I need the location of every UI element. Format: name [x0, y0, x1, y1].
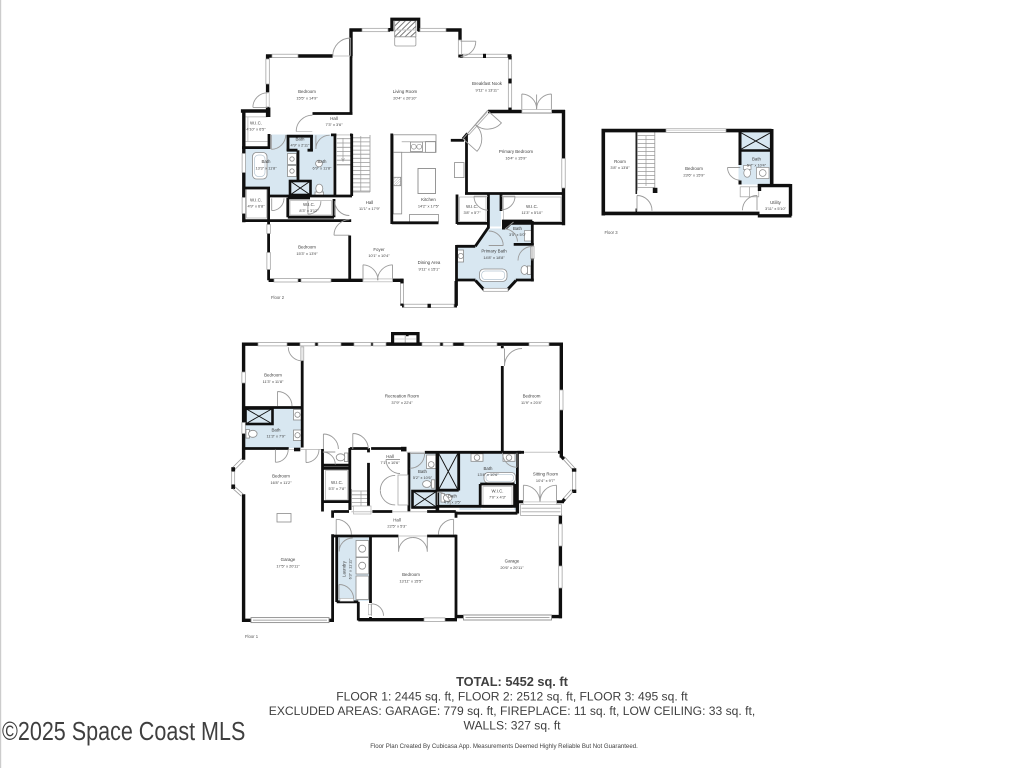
- svg-text:WALLS: 327 sq. ft: WALLS: 327 sq. ft: [463, 719, 561, 733]
- svg-text:Kitchen: Kitchen: [421, 197, 436, 202]
- svg-text:Foyer: Foyer: [373, 247, 385, 252]
- svg-text:Bath: Bath: [317, 159, 327, 164]
- svg-text:4'9" x 6'8": 4'9" x 6'8": [247, 204, 265, 209]
- svg-text:3'8" x 13'8": 3'8" x 13'8": [610, 165, 630, 170]
- svg-text:W.I.C.: W.I.C.: [492, 489, 504, 494]
- svg-text:11'3" x 11'8": 11'3" x 11'8": [263, 379, 284, 384]
- svg-text:15'5" x 14'9": 15'5" x 14'9": [296, 96, 318, 101]
- svg-text:17'5" x 20'11": 17'5" x 20'11": [276, 564, 300, 569]
- svg-text:W.I.C.: W.I.C.: [466, 204, 478, 209]
- svg-text:Floor 3: Floor 3: [605, 230, 619, 235]
- svg-text:Hall: Hall: [393, 518, 401, 523]
- svg-text:11'9" x 20'4": 11'9" x 20'4": [521, 400, 543, 405]
- svg-text:13'3" x 11'8": 13'3" x 11'8": [255, 166, 277, 171]
- svg-text:23'6" x 15'9": 23'6" x 15'9": [683, 173, 705, 178]
- svg-text:Floor 1: Floor 1: [245, 634, 259, 639]
- svg-text:14'2" x 17'5": 14'2" x 17'5": [418, 204, 440, 209]
- svg-text:14'8" x 18'8": 14'8" x 18'8": [483, 255, 505, 260]
- svg-text:Bedroom: Bedroom: [272, 474, 290, 479]
- svg-text:11'3" x 7'9": 11'3" x 7'9": [267, 434, 287, 439]
- svg-text:Bath: Bath: [261, 159, 271, 164]
- svg-text:Bedroom: Bedroom: [298, 89, 316, 94]
- svg-text:Breakfast Nook: Breakfast Nook: [472, 81, 503, 86]
- svg-text:Bath: Bath: [295, 137, 305, 142]
- svg-text:W.I.C.: W.I.C.: [303, 202, 315, 207]
- svg-text:W.I.C.: W.I.C.: [526, 204, 538, 209]
- svg-text:3'5" x 5'0": 3'5" x 5'0": [509, 232, 527, 237]
- svg-text:16'8" x 11'2": 16'8" x 11'2": [270, 480, 292, 485]
- svg-text:9'11" x 15'1": 9'11" x 15'1": [418, 267, 440, 272]
- svg-text:Bath: Bath: [513, 226, 523, 231]
- svg-text:11'1" x 17'9": 11'1" x 17'9": [359, 206, 381, 211]
- svg-text:5'2" x 10'6": 5'2" x 10'6": [413, 475, 433, 480]
- svg-text:4'9" x 3'5": 4'9" x 3'5": [444, 500, 462, 505]
- svg-text:TOTAL: 5452 sq. ft: TOTAL: 5452 sq. ft: [456, 674, 569, 689]
- svg-text:5'3" x 7'8": 5'3" x 7'8": [328, 486, 346, 491]
- svg-text:Bedroom: Bedroom: [402, 572, 420, 577]
- svg-text:8'3" x 3'12": 8'3" x 3'12": [299, 208, 319, 213]
- svg-text:37'9" x 22'4": 37'9" x 22'4": [391, 400, 413, 405]
- svg-text:10'4" x 9'7": 10'4" x 9'7": [536, 478, 556, 483]
- svg-text:©2025 Space Coast MLS: ©2025 Space Coast MLS: [2, 718, 245, 746]
- svg-text:EXCLUDED AREAS: GARAGE: 779 sq: EXCLUDED AREAS: GARAGE: 779 sq. ft, FIRE…: [269, 704, 755, 718]
- svg-text:6'3" x 11'11": 6'3" x 11'11": [348, 558, 353, 579]
- svg-text:Bath: Bath: [271, 428, 281, 433]
- svg-text:Floor Plan Created By Cubicasa: Floor Plan Created By Cubicasa App. Meas…: [370, 743, 638, 750]
- svg-text:13'11" x 15'5": 13'11" x 15'5": [399, 579, 423, 584]
- svg-text:Hall: Hall: [366, 200, 374, 205]
- svg-text:Floor 2: Floor 2: [271, 295, 285, 300]
- svg-text:Bedroom: Bedroom: [298, 245, 316, 250]
- svg-text:Hall: Hall: [386, 454, 394, 459]
- svg-text:3'8" x 5'7": 3'8" x 5'7": [463, 210, 481, 215]
- svg-text:Bath: Bath: [448, 494, 458, 499]
- svg-text:10'1" x 10'4": 10'1" x 10'4": [368, 253, 390, 258]
- svg-text:20'6" x 20'11": 20'6" x 20'11": [500, 565, 524, 570]
- svg-text:9'11" x 13'11": 9'11" x 13'11": [476, 88, 500, 93]
- svg-text:Garage: Garage: [505, 559, 520, 564]
- svg-text:FLOOR 1: 2445 sq. ft, FLOOR 2:: FLOOR 1: 2445 sq. ft, FLOOR 2: 2512 sq. …: [336, 690, 688, 704]
- svg-text:5'7" x 10'4": 5'7" x 10'4": [747, 163, 767, 168]
- svg-text:Utility: Utility: [770, 200, 782, 205]
- svg-text:Bath: Bath: [418, 469, 428, 474]
- svg-text:Living Room: Living Room: [393, 89, 418, 94]
- svg-text:Bath: Bath: [752, 157, 762, 162]
- svg-text:Hall: Hall: [330, 116, 338, 121]
- svg-text:4'10" x 6'5": 4'10" x 6'5": [246, 127, 266, 132]
- svg-text:Dining Area: Dining Area: [418, 260, 441, 265]
- svg-text:Bedroom: Bedroom: [264, 373, 282, 378]
- svg-text:22'5" x 5'3": 22'5" x 5'3": [387, 524, 407, 529]
- svg-text:W.I.C.: W.I.C.: [250, 121, 262, 126]
- svg-text:4'9" x 2'11": 4'9" x 2'11": [291, 143, 311, 148]
- svg-text:7'0" x 4'3": 7'0" x 4'3": [489, 495, 507, 500]
- svg-text:Primary Bedroom: Primary Bedroom: [499, 149, 534, 154]
- svg-text:15'3" x 13'9": 15'3" x 13'9": [296, 251, 318, 256]
- svg-text:Recreation Room: Recreation Room: [385, 394, 420, 399]
- svg-text:7'1" x 10'6": 7'1" x 10'6": [380, 460, 400, 465]
- svg-text:11'3" x 5'10": 11'3" x 5'10": [521, 210, 543, 215]
- svg-text:Room: Room: [614, 159, 626, 164]
- svg-text:Bath: Bath: [483, 466, 493, 471]
- svg-text:Primary Bath: Primary Bath: [481, 249, 507, 254]
- svg-text:16'4" x 15'9": 16'4" x 15'9": [505, 156, 527, 161]
- svg-text:3'11" x 5'10": 3'11" x 5'10": [765, 206, 787, 211]
- svg-text:Bedroom: Bedroom: [685, 166, 703, 171]
- svg-text:W.I.C.: W.I.C.: [331, 480, 343, 485]
- svg-text:20'4" x 20'10": 20'4" x 20'10": [393, 96, 417, 101]
- svg-text:Bedroom: Bedroom: [523, 394, 541, 399]
- svg-text:13'4" x 10'6": 13'4" x 10'6": [477, 472, 499, 477]
- svg-text:6'9" x 11'8": 6'9" x 11'8": [313, 166, 333, 171]
- svg-text:Sitting Room: Sitting Room: [533, 472, 558, 477]
- svg-text:Garage: Garage: [281, 557, 296, 562]
- svg-text:7'3" x 3'6": 7'3" x 3'6": [325, 122, 343, 127]
- svg-text:Laundry: Laundry: [342, 560, 347, 577]
- svg-text:W.I.C.: W.I.C.: [250, 198, 262, 203]
